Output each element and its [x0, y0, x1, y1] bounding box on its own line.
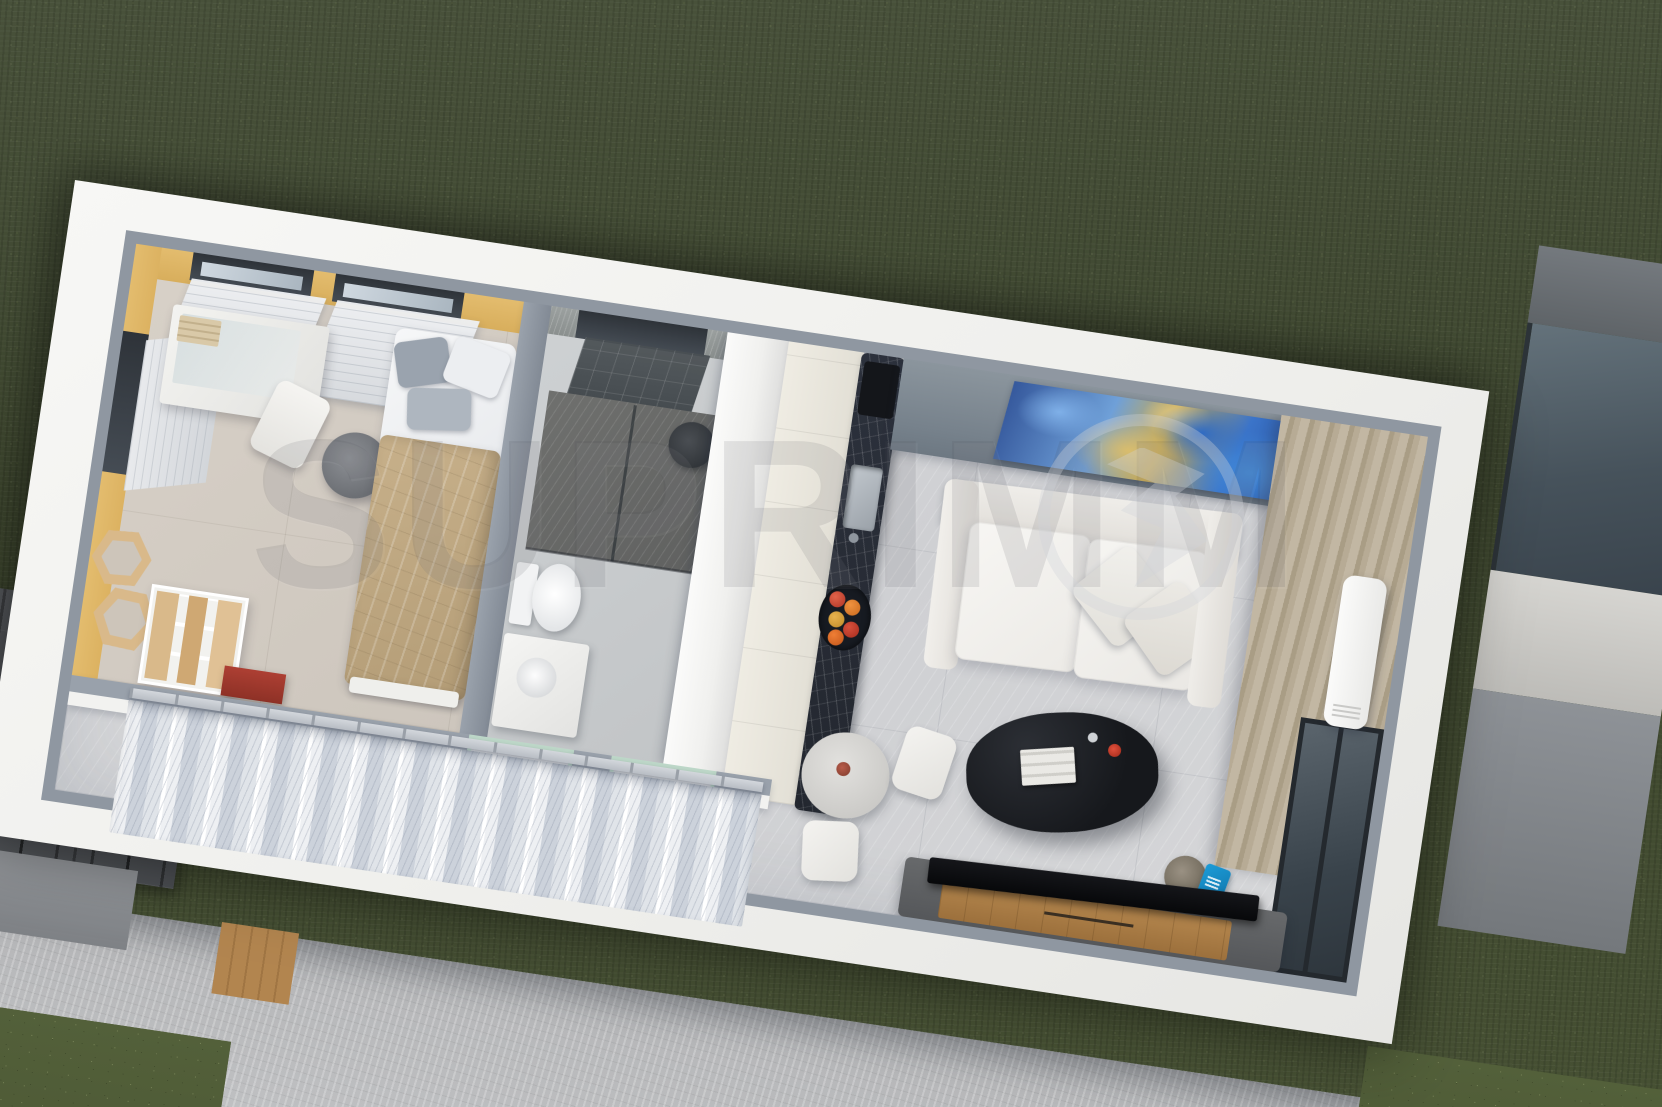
dining-chair-1 [889, 723, 959, 802]
sofa-seat-cushion [954, 521, 1092, 673]
sofa [921, 478, 1243, 715]
dining-chair-2 [801, 820, 860, 882]
wooden-step [211, 922, 299, 1005]
bathroom-vanity [491, 633, 590, 739]
fruit [843, 598, 861, 616]
coffee-table-books [1020, 747, 1076, 786]
fruit [842, 621, 860, 639]
floorplan-render: SUPRIMM [0, 0, 1662, 1107]
neighbor-lower-wall [1437, 688, 1660, 953]
pillow [393, 336, 453, 389]
pillow [407, 388, 472, 432]
